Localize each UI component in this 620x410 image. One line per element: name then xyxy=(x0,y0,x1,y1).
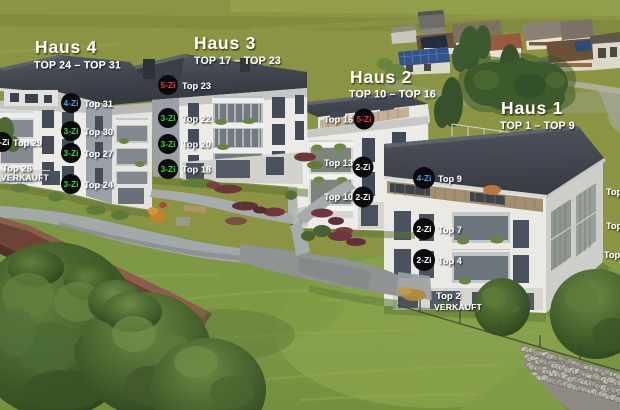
svg-text:Top 10: Top 10 xyxy=(324,192,353,202)
svg-text:3-Zi: 3-Zi xyxy=(64,126,79,136)
svg-text:Top 9: Top 9 xyxy=(438,174,462,184)
svg-text:4-Zi: 4-Zi xyxy=(417,173,432,183)
svg-text:Top 20: Top 20 xyxy=(182,140,211,150)
svg-text:3-Zi: 3-Zi xyxy=(161,113,176,123)
svg-text:Top 18: Top 18 xyxy=(182,165,211,175)
svg-text:Top 5: Top 5 xyxy=(606,221,620,231)
svg-text:Top 23: Top 23 xyxy=(182,81,211,91)
svg-text:2-Zi: 2-Zi xyxy=(417,224,432,234)
svg-text:Top 7: Top 7 xyxy=(438,225,462,235)
svg-text:Top 22: Top 22 xyxy=(182,114,211,124)
svg-text:5-Zi: 5-Zi xyxy=(161,80,176,90)
svg-text:Top 31: Top 31 xyxy=(84,99,113,109)
svg-text:3-Zi: 3-Zi xyxy=(64,148,79,158)
svg-text:Top 29: Top 29 xyxy=(13,138,42,148)
svg-text:2-Zi: 2-Zi xyxy=(356,162,371,172)
svg-text:TOP 1 – TOP 9: TOP 1 – TOP 9 xyxy=(500,120,575,132)
svg-text:3-Zi: 3-Zi xyxy=(64,179,79,189)
svg-text:3-Zi: 3-Zi xyxy=(161,139,176,149)
svg-text:Haus 4: Haus 4 xyxy=(35,37,97,57)
svg-text:Top 24: Top 24 xyxy=(84,180,114,190)
svg-text:5-Zi: 5-Zi xyxy=(357,114,372,124)
svg-text:VERKAUFT: VERKAUFT xyxy=(434,302,482,312)
svg-text:Haus 1: Haus 1 xyxy=(501,98,563,118)
svg-text:2-Zi: 2-Zi xyxy=(0,137,9,147)
svg-text:2-Zi: 2-Zi xyxy=(417,255,432,265)
svg-text:Top 30: Top 30 xyxy=(84,127,113,137)
svg-text:3-Zi: 3-Zi xyxy=(161,164,176,174)
svg-text:Top 16: Top 16 xyxy=(324,115,353,125)
svg-text:Top 27: Top 27 xyxy=(84,149,113,159)
svg-text:Top 2: Top 2 xyxy=(436,291,461,302)
svg-text:VERKAUFT: VERKAUFT xyxy=(1,173,49,183)
svg-text:4-Zi: 4-Zi xyxy=(64,98,79,108)
svg-text:Haus 2: Haus 2 xyxy=(350,67,412,87)
svg-text:TOP 24 – TOP 31: TOP 24 – TOP 31 xyxy=(34,60,121,72)
svg-text:Top 4: Top 4 xyxy=(438,256,463,266)
svg-text:Haus 3: Haus 3 xyxy=(194,33,256,53)
svg-text:Top 8: Top 8 xyxy=(606,187,620,197)
svg-text:2-Zi: 2-Zi xyxy=(356,192,371,202)
svg-text:Top 13: Top 13 xyxy=(324,158,353,168)
svg-text:TOP 10 – TOP 16: TOP 10 – TOP 16 xyxy=(349,89,436,101)
svg-text:Top 3: Top 3 xyxy=(604,250,620,260)
svg-text:TOP 17 – TOP 23: TOP 17 – TOP 23 xyxy=(194,55,281,67)
